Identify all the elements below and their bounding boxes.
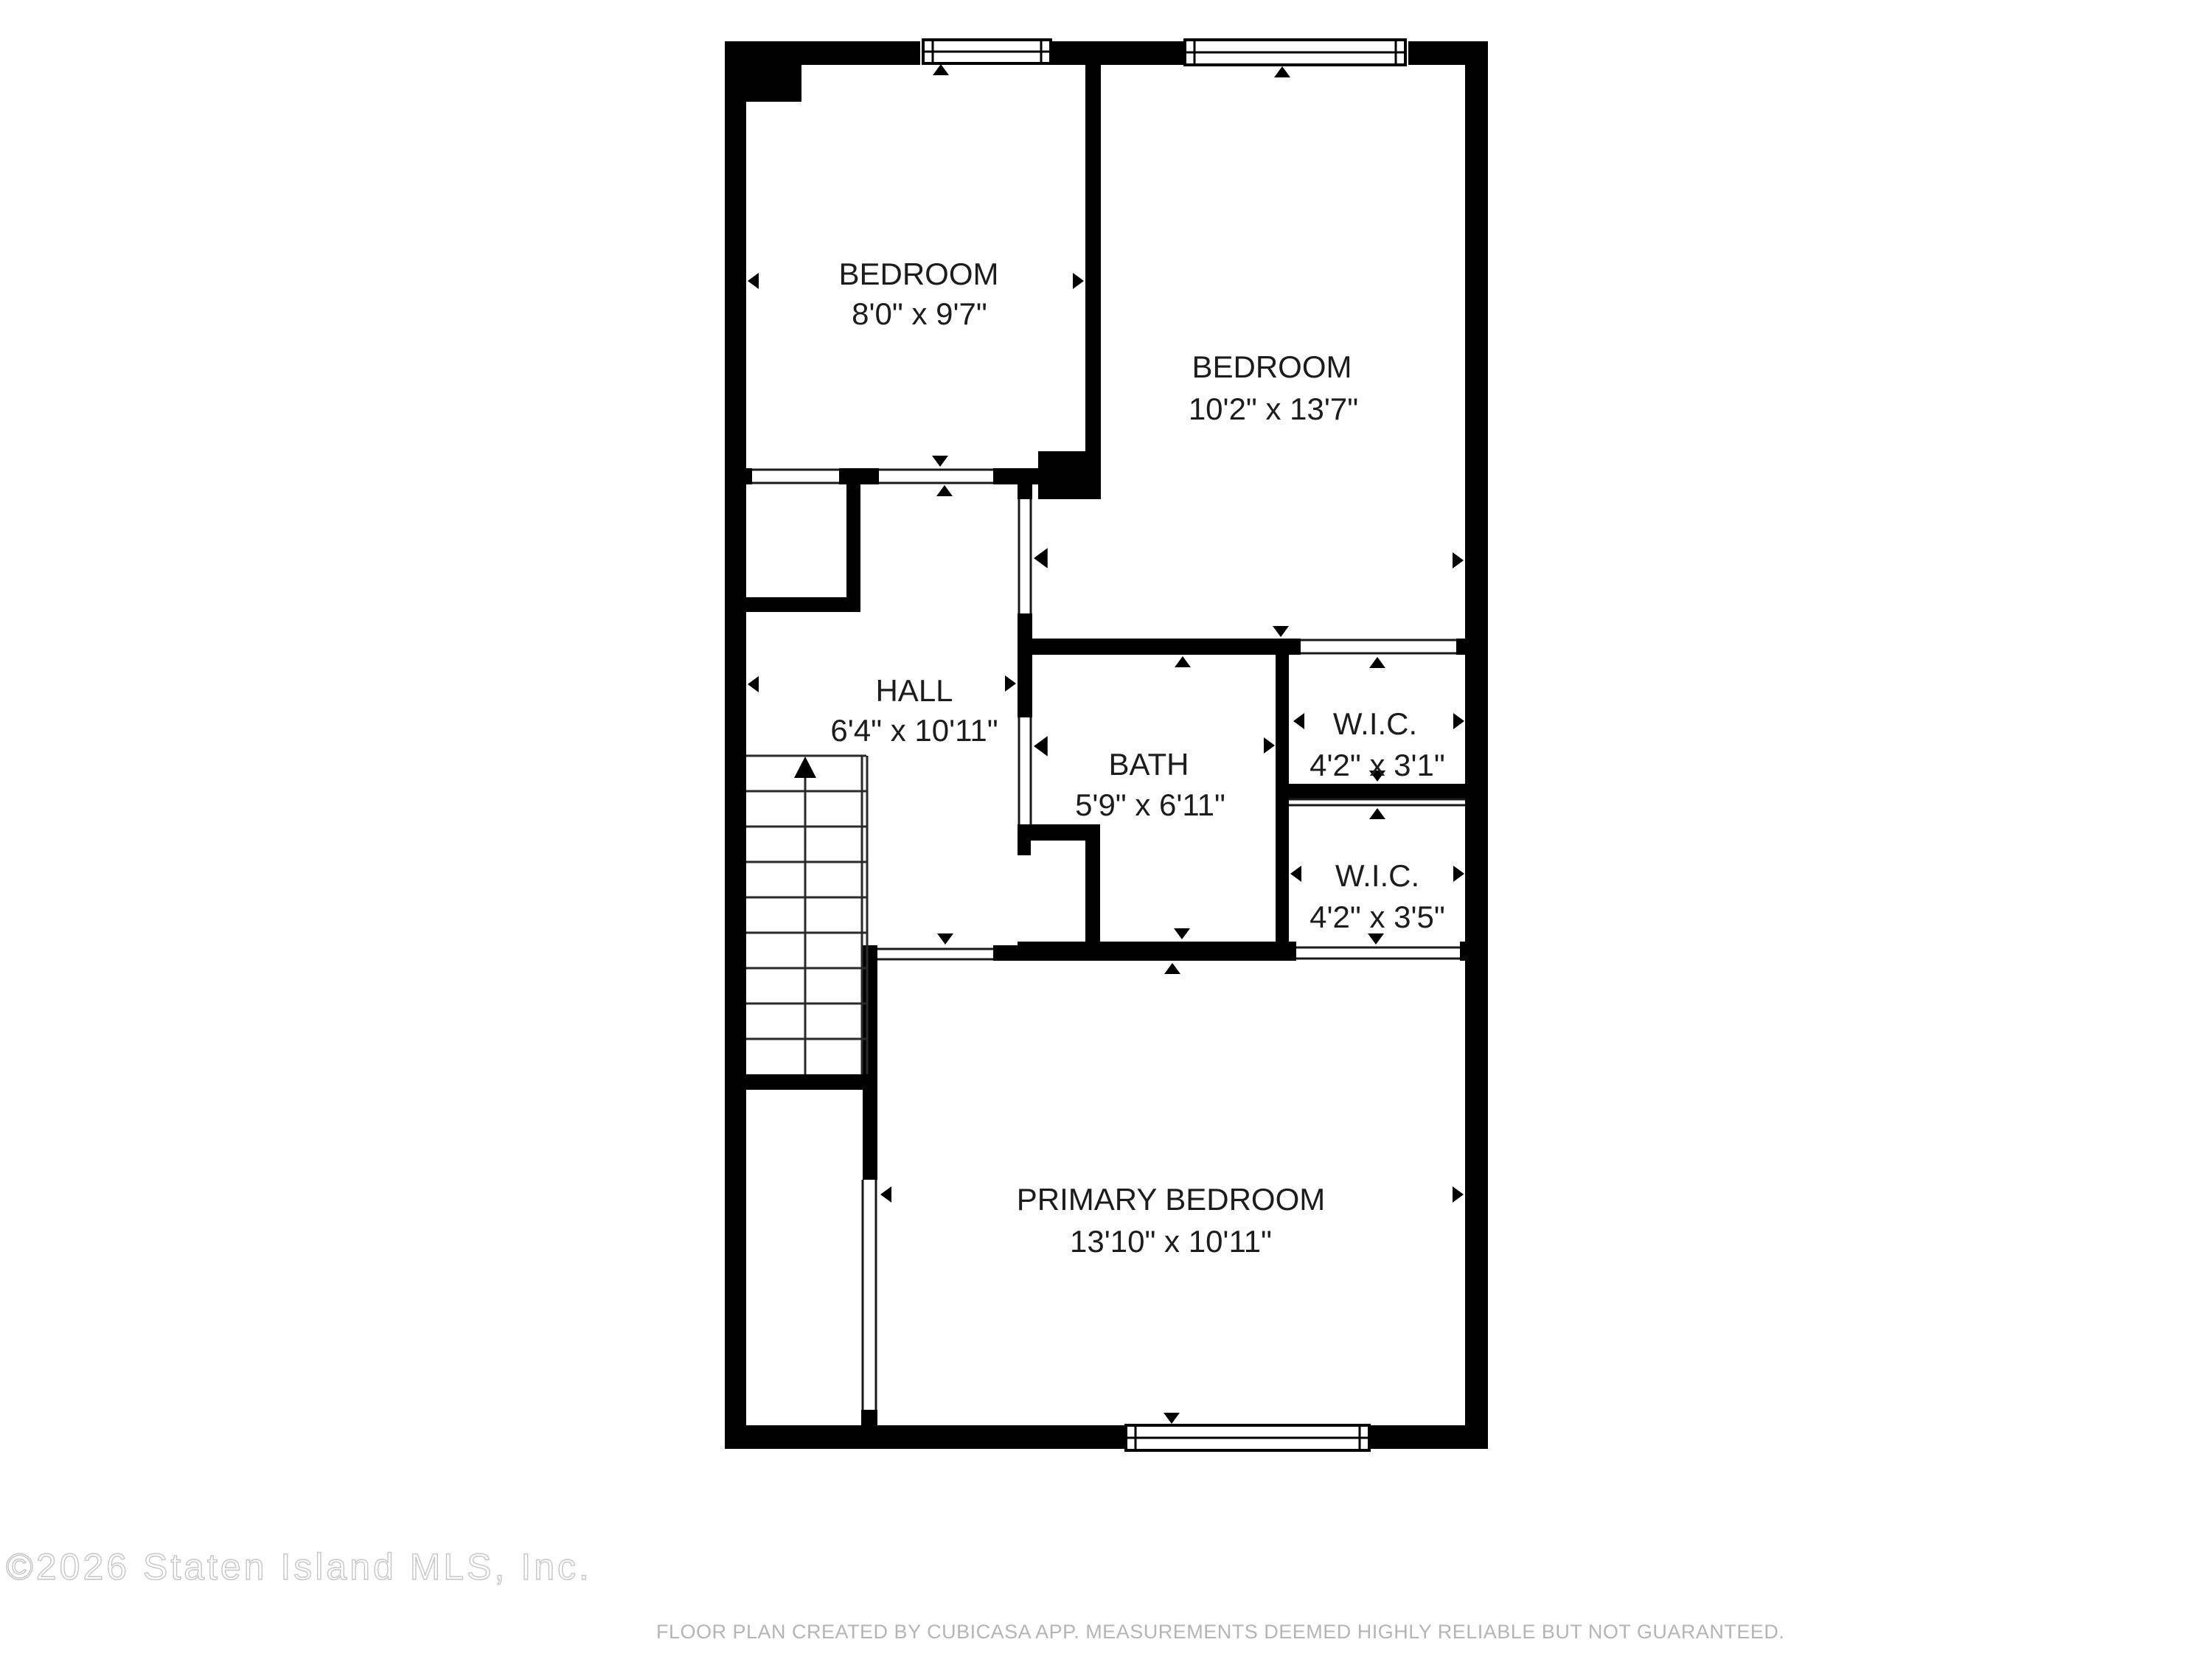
bedroom-small-dimensions: 8'0" x 9'7" (852, 296, 987, 331)
bedroom-small-label: BEDROOM (838, 257, 998, 291)
wic-lower-dimensions: 4'2" x 3'5" (1310, 900, 1445, 934)
window-icon-top-right (1185, 40, 1405, 65)
hall-label: HALL (875, 673, 953, 708)
floorplan-drawing: BEDROOM 8'0" x 9'7" BEDROOM 10'2" x 13'7… (0, 0, 2212, 1659)
hall-dimensions: 6'4" x 10'11" (830, 713, 998, 748)
wic-upper-label: W.I.C. (1333, 706, 1417, 741)
window-icon-top-left (923, 40, 1051, 63)
bath-label: BATH (1109, 747, 1189, 782)
window-icon-bottom (1126, 1425, 1369, 1450)
disclaimer-text: FLOOR PLAN CREATED BY CUBICASA APP. MEAS… (656, 1621, 1784, 1643)
bedroom-large-dimensions: 10'2" x 13'7" (1189, 392, 1358, 426)
footer: ©2026 Staten Island MLS, Inc. FLOOR PLAN… (6, 1546, 1784, 1643)
floorplan-page: BEDROOM 8'0" x 9'7" BEDROOM 10'2" x 13'7… (0, 0, 2212, 1659)
copyright-watermark: ©2026 Staten Island MLS, Inc. (6, 1546, 592, 1587)
primary-bedroom-dimensions: 13'10" x 10'11" (1070, 1224, 1272, 1259)
stairs (746, 756, 867, 1074)
bath-dimensions: 5'9" x 6'11" (1075, 787, 1225, 822)
wic-upper-dimensions: 4'2" x 3'1" (1310, 748, 1445, 782)
stairs-up-arrow-icon (794, 757, 816, 1074)
bedroom-large-label: BEDROOM (1192, 349, 1352, 384)
wic-lower-label: W.I.C. (1335, 858, 1419, 893)
room-labels: BEDROOM 8'0" x 9'7" BEDROOM 10'2" x 13'7… (830, 257, 1444, 1259)
primary-bedroom-label: PRIMARY BEDROOM (1017, 1182, 1326, 1217)
